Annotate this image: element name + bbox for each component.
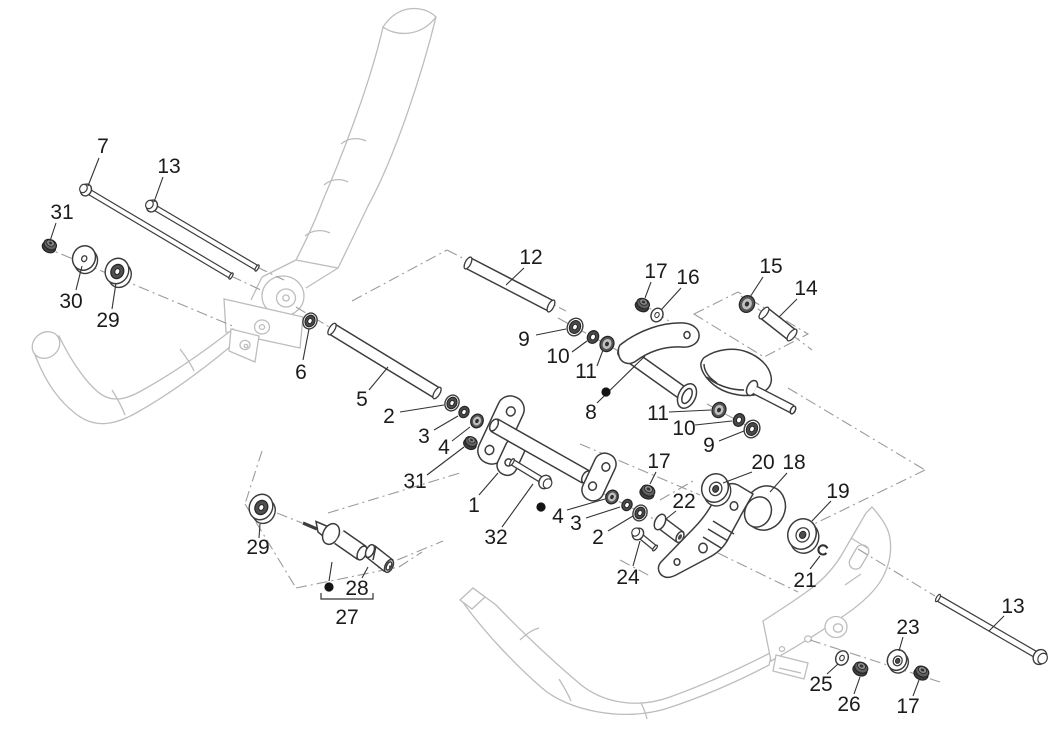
part-number-label: 32 [484,526,507,549]
part-number-label: 17 [896,695,919,718]
bushing-15 [737,293,758,315]
part-number-label: 1 [468,494,480,517]
ring-3-right [620,498,634,513]
part-number-label: 31 [50,201,73,224]
part-number-label: 15 [759,255,782,278]
washer-2-right [630,503,649,524]
part-callout-15-8: 15 [750,255,783,297]
part-callout-22-29: 22 [666,490,696,519]
part-callout-20-26: 20 [723,451,775,483]
part-callout-23-38: 23 [896,616,919,651]
part-callout-17-41: 17 [896,680,919,718]
part-number-label: 10 [672,417,695,440]
part-number-label: 6 [295,361,307,384]
part-number-label: 3 [570,512,582,535]
washer-30 [68,242,103,278]
nut-17-top [633,296,651,314]
exploded-view-diagram: 7133130291217161514659101182343113211109… [0,0,1064,740]
part-callout-2-34: 2 [592,516,633,549]
part-callout-11-14: 11 [575,350,603,383]
part-callout-24-31: 24 [616,541,640,589]
parts-diagram: 7133130291217161514659101182343113211109… [0,0,1064,740]
part-number-label: 10 [546,345,569,368]
callout-layer: 7133130291217161514659101182343113211109… [50,135,1025,718]
frame-tube-bottom [460,588,772,719]
part-number-label: 9 [703,434,715,457]
part-callout-17-25: 17 [647,450,670,484]
clip-21 [817,544,829,556]
bushing-4-right [603,488,620,506]
part-callout-14-9: 14 [779,277,818,317]
part-callout-1-20: 1 [468,473,498,517]
bushing-part28 [364,543,396,574]
part-callout-2-16: 2 [383,405,444,428]
bullet-marker [324,582,333,591]
part-number-label: 4 [552,505,564,528]
part-number-label: 9 [518,328,530,351]
part-number-label: 11 [647,402,669,425]
part-number-label: 24 [616,566,640,589]
frame-tube-top [296,8,436,268]
part-callout-7-0: 7 [88,135,109,186]
bushing-4-left [468,412,485,430]
part-number-label: 13 [1001,595,1024,618]
bullet-marker [601,387,610,396]
part-callout-13-37: 13 [989,595,1025,631]
part-number-label: 25 [809,673,832,696]
axis-line-19 [277,513,302,523]
rods-and-bolts-layer [78,182,1049,667]
bushing-29-upper [100,254,137,291]
part-number-label: 28 [345,577,368,600]
part-number-label: 27 [335,606,358,629]
part-number-label: 12 [519,246,542,269]
rocker-arm-part8 [616,323,797,415]
part-callout-12-5: 12 [506,246,543,285]
part-number-label: 11 [575,360,597,383]
part-number-label: 2 [383,405,395,428]
bushing-11-right [709,400,728,420]
part-number-label: 23 [896,616,919,639]
rod-14 [757,306,798,343]
part-callout-28-36: 28 [345,567,368,600]
washer-9-left [564,316,586,339]
bullet-marker [536,502,545,511]
frame-tube-left [27,326,259,423]
rod-5 [326,322,443,400]
part-number-label: 4 [438,436,450,459]
bushing-29-lower [244,490,281,527]
part-number-label: 30 [59,290,82,313]
part-callout-17-6: 17 [644,260,667,298]
axis-line-11 [718,553,798,592]
part-number-label: 29 [246,536,269,559]
nut-26 [851,660,870,679]
part-number-label: 17 [647,450,670,473]
part-number-label: 22 [672,490,695,513]
part-callout-31-2: 31 [50,201,74,241]
part-number-label: 26 [837,693,860,716]
part-number-label: 31 [403,470,426,493]
part-callout-31-19: 31 [403,447,464,493]
washer-10-left [585,329,601,346]
part-callout-29-35: 29 [246,524,269,559]
washer-23 [883,646,912,676]
part-number-label: 17 [644,260,667,283]
part-number-label: 3 [418,425,430,448]
part-number-label: 29 [96,309,119,332]
nut-31-center [462,435,479,452]
pin-part27 [303,521,369,562]
part-number-label: 14 [794,277,818,300]
part-callout-25-39: 25 [809,664,838,696]
axis-line-9 [788,388,925,470]
axis-line-23 [399,552,422,567]
axis-line-24 [328,473,460,513]
part-callout-21-30: 21 [793,556,820,592]
part-number-label: 19 [826,480,849,503]
part-number-label: 18 [782,451,805,474]
part-callout-19-28: 19 [812,480,850,521]
ring-3-left [457,405,471,420]
part-callout-32-21: 32 [484,484,533,549]
washer-25 [833,649,850,668]
part-callout-13-1: 13 [154,155,181,202]
part-number-label: 8 [585,401,597,424]
part-number-label: 20 [751,451,774,474]
axis-line-4 [352,250,447,301]
part-number-label: 7 [97,135,109,158]
part-number-label: 16 [676,266,699,289]
part-callout-26-40: 26 [837,677,860,716]
part-callout-10-23: 10 [672,417,732,440]
bushing-11-left [597,334,616,354]
part-callout-30-3: 30 [59,266,82,313]
bolt-24 [630,526,658,552]
part-number-label: 13 [157,155,180,178]
washer-6 [300,311,319,332]
part-callout-29-4: 29 [96,283,119,332]
part-number-label: 2 [592,526,604,549]
part-callout-9-24: 9 [703,431,744,457]
nut-17-mid [638,483,657,502]
part-number-label: 5 [356,388,368,411]
frame-swingarm-bracket [763,507,891,679]
part-callout-18-27: 18 [770,451,806,492]
nut-17-bottom [912,664,931,683]
part-number-label: 21 [793,569,816,592]
bolt-13-lower [935,594,1050,667]
